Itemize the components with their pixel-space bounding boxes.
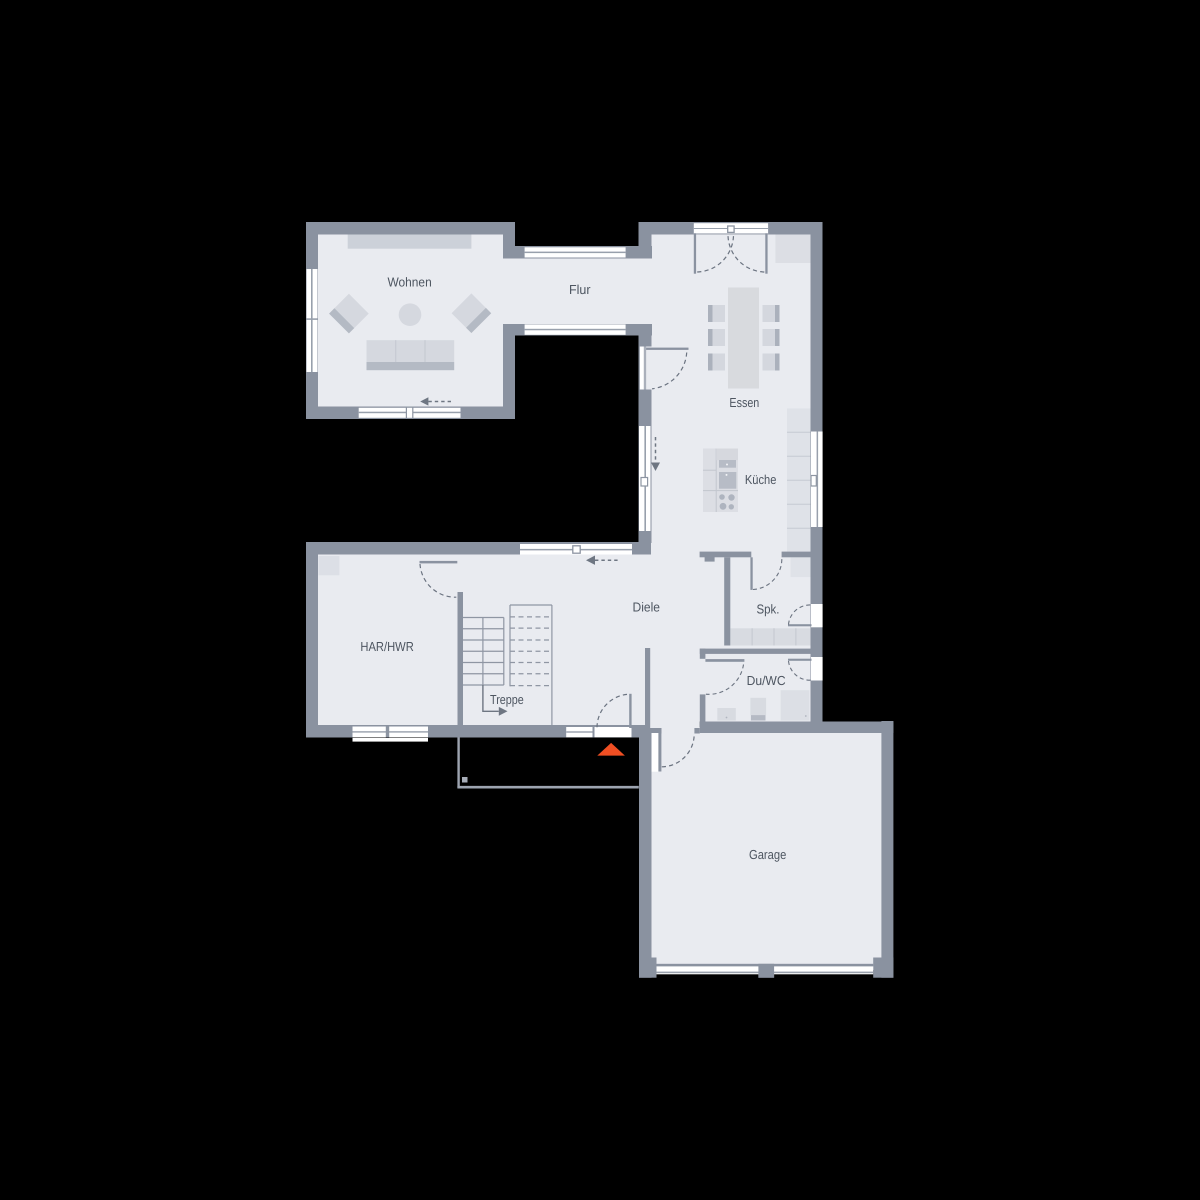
svg-text:Wohnen: Wohnen bbox=[388, 274, 432, 289]
svg-text:Garage: Garage bbox=[749, 847, 786, 862]
svg-text:Spk.: Spk. bbox=[757, 601, 780, 616]
svg-text:Diele: Diele bbox=[633, 600, 661, 615]
svg-text:Flur: Flur bbox=[569, 282, 591, 297]
svg-text:Du/WC: Du/WC bbox=[747, 673, 786, 688]
svg-text:Küche: Küche bbox=[745, 472, 777, 487]
svg-text:Essen: Essen bbox=[729, 395, 759, 410]
svg-text:HAR/HWR: HAR/HWR bbox=[360, 639, 413, 654]
svg-text:Treppe: Treppe bbox=[490, 692, 524, 707]
